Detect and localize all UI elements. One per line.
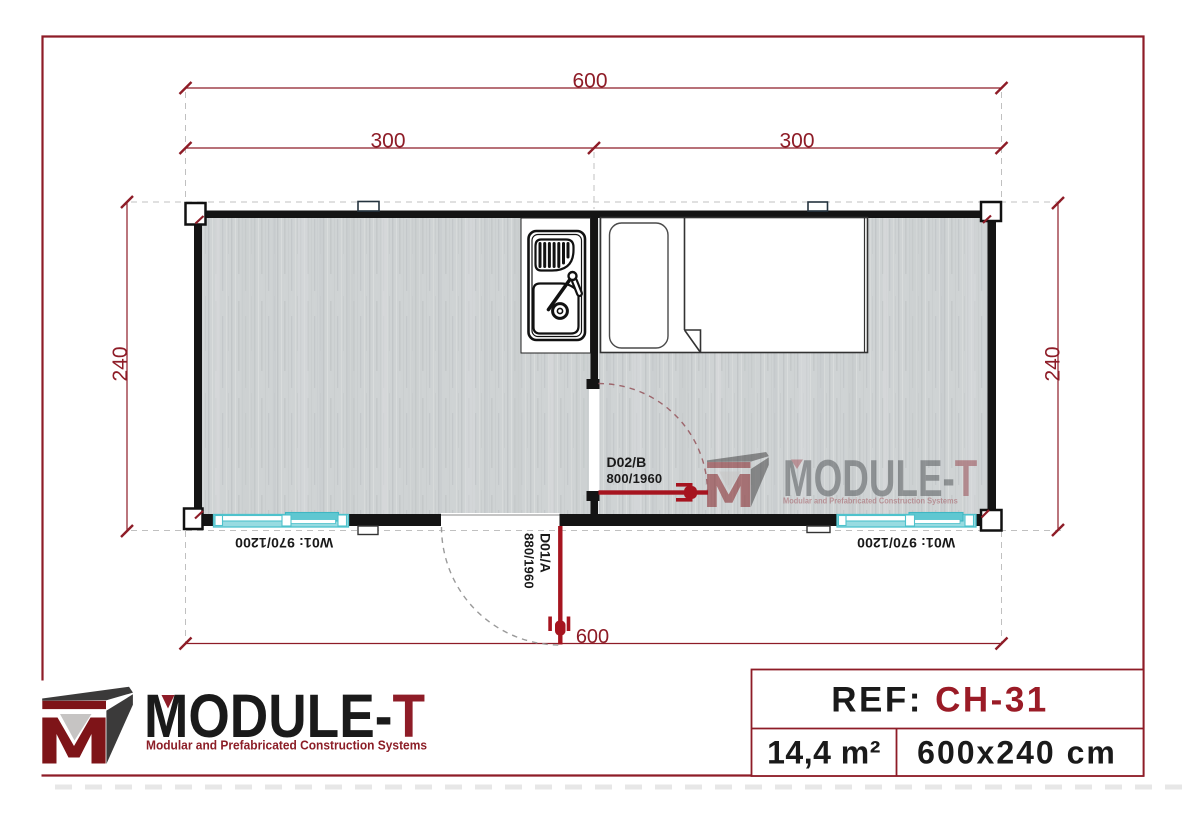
svg-text:240: 240 bbox=[109, 346, 132, 381]
svg-text:240: 240 bbox=[1042, 346, 1065, 381]
svg-text:800/1960: 800/1960 bbox=[607, 471, 663, 486]
svg-text:Modular and Prefabricated Cons: Modular and Prefabricated Construction S… bbox=[146, 738, 427, 753]
svg-text:880/1960: 880/1960 bbox=[522, 533, 537, 589]
svg-text:300: 300 bbox=[370, 129, 405, 152]
svg-text:600: 600 bbox=[572, 70, 607, 93]
svg-text:D02/B: D02/B bbox=[607, 454, 647, 470]
svg-text:W01: 970/1200: W01: 970/1200 bbox=[235, 535, 333, 551]
svg-text:W01: 970/1200: W01: 970/1200 bbox=[857, 535, 955, 551]
svg-text:600: 600 bbox=[576, 626, 609, 648]
svg-text:D01/A: D01/A bbox=[538, 533, 554, 573]
svg-text:REF: CH-31: REF: CH-31 bbox=[831, 681, 1049, 720]
svg-text:600x240 cm: 600x240 cm bbox=[917, 735, 1117, 771]
svg-text:14,4 m²: 14,4 m² bbox=[767, 735, 881, 771]
svg-text:300: 300 bbox=[779, 129, 814, 152]
svg-text:Modular and Prefabricated Cons: Modular and Prefabricated Construction S… bbox=[783, 496, 958, 505]
